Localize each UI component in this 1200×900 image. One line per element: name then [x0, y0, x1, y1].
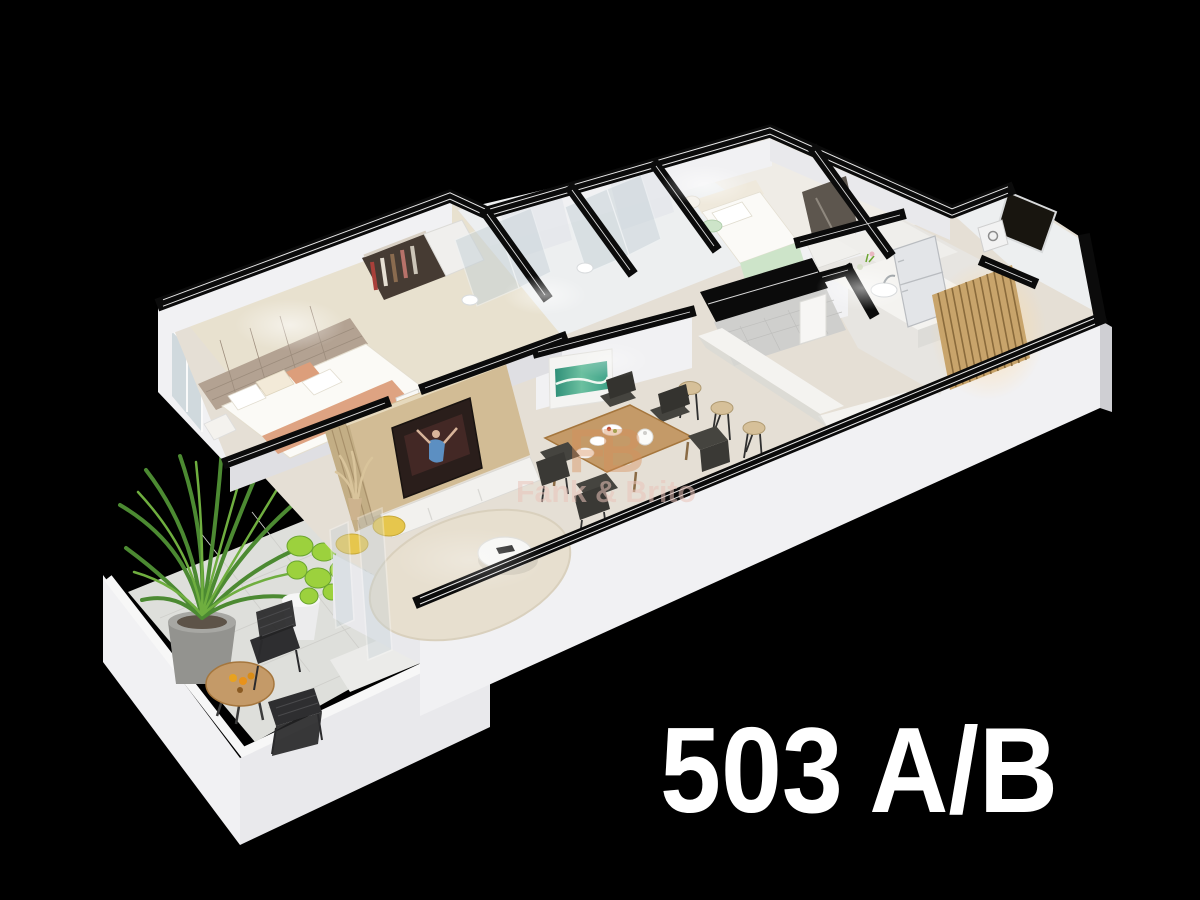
- unit-label: 503 A/B: [660, 702, 1058, 838]
- bistro-table-top: [206, 662, 274, 706]
- watermark-brand: Fank & Brito: [516, 474, 696, 509]
- glow: [395, 528, 545, 592]
- fruit: [229, 674, 237, 682]
- rendered-image: FB Fank & Brito 503 A/B: [0, 0, 1200, 900]
- teapot-lid: [643, 431, 647, 435]
- east-end-face: [1100, 320, 1112, 412]
- glow: [570, 342, 650, 378]
- flower-bloom: [870, 252, 875, 257]
- toilet-bath1: [462, 295, 478, 305]
- glow: [503, 275, 587, 315]
- floor-plan-render: FB Fank & Brito 503 A/B: [0, 0, 1200, 900]
- hall-door: [800, 294, 826, 344]
- toilet-bath2: [577, 263, 593, 273]
- performer-head: [432, 430, 440, 438]
- fruit: [237, 687, 243, 693]
- glow: [235, 299, 345, 351]
- fruit: [248, 673, 255, 680]
- glow: [816, 266, 908, 310]
- performer-body: [429, 439, 445, 462]
- fruit: [239, 677, 247, 685]
- glow: [661, 165, 749, 205]
